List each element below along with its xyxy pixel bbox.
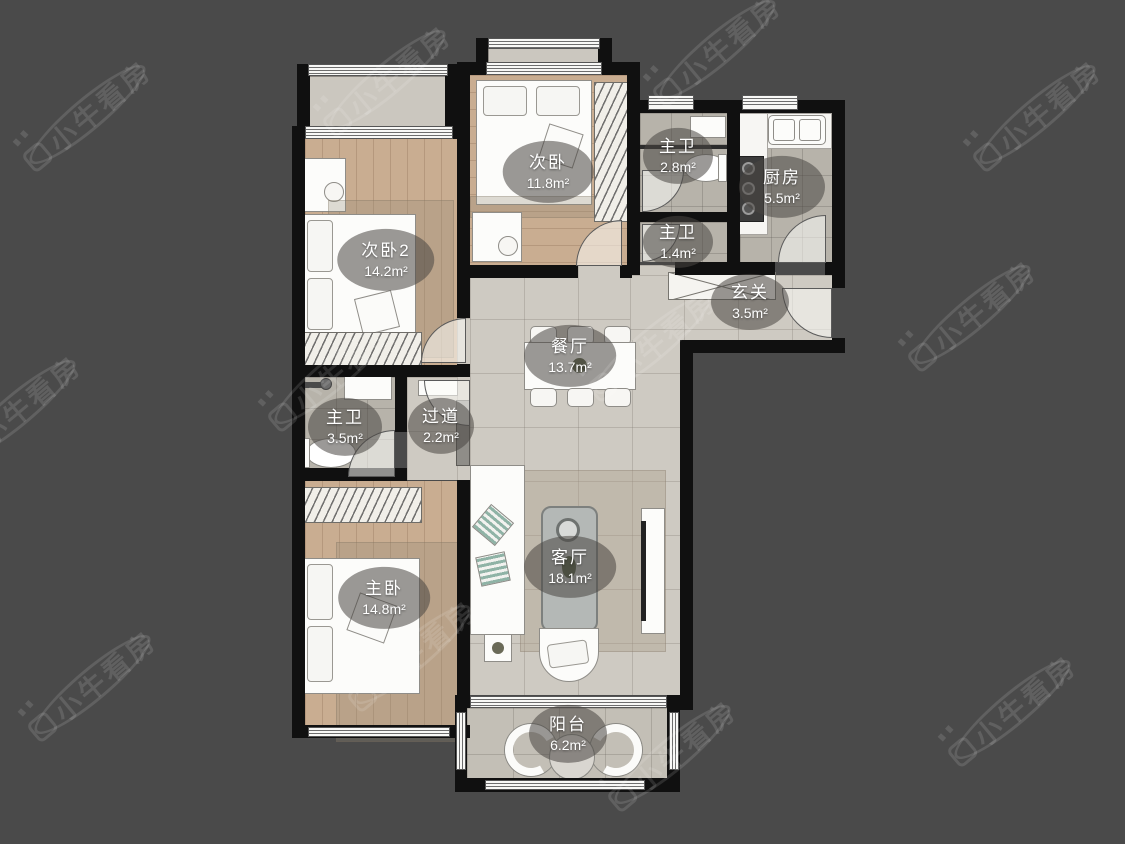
room-name: 主卫 [659,222,697,244]
window [486,62,602,75]
wall-segment [680,353,693,710]
bull-camera-logo-icon [905,340,939,374]
tv-screen [641,521,646,621]
bed-pillow [536,86,580,116]
dining-chair [604,388,631,407]
watermark: 小牛看房 [901,250,1045,380]
wall-segment [457,480,470,708]
sofa [470,465,525,635]
wall-segment [832,338,845,353]
wardrobe [302,487,422,523]
room-label-dining: 餐厅 13.7m² [524,325,616,387]
room-label-corridor: 过道 2.2m² [408,398,474,454]
desk-chair [498,236,518,256]
room-area: 6.2m² [549,736,587,754]
dining-chair [530,388,557,407]
balcony-side-window [456,712,466,770]
room-label-living: 客厅 18.1m² [524,536,616,598]
room-area: 13.7m² [548,358,592,376]
room-area: 11.8m² [527,174,570,192]
watermark-text: 小牛看房 [0,345,89,455]
balcony-window [485,780,645,790]
bull-camera-logo-icon [25,710,59,744]
room-name: 餐厅 [548,336,592,358]
room-area: 3.5m² [731,304,769,322]
watermark: 小牛看房 [0,345,89,475]
room-name: 玄关 [731,282,769,304]
floorplan-canvas: 次卧 11.8m² 主卫 2.8m² 厨房 5.5m² 次卧2 14.2m² 主… [0,0,1125,844]
window [305,126,453,139]
room-name: 过道 [422,406,460,428]
room-area: 2.2m² [422,428,460,446]
wall-segment [476,38,488,65]
bay-window [488,38,600,49]
bull-camera-logo-icon [945,735,979,769]
wardrobe [594,82,628,222]
room-name: 客厅 [548,547,592,569]
bull-camera-logo-icon [20,140,54,174]
watermark-text: 小牛看房 [924,250,1044,360]
desk-chair [324,182,344,202]
bedroom2-bay-sill [308,76,448,128]
side-table-flower [492,642,504,654]
room-area: 14.8m² [362,600,406,618]
room-name: 主卫 [326,407,364,429]
room-label-bath-1-4: 主卫 1.4m² [643,216,713,268]
room-name: 阳台 [549,714,587,736]
room-name: 次卧 [527,152,570,174]
wall-segment [395,377,407,432]
watermark-text: 小牛看房 [989,50,1109,160]
room-area: 1.4m² [659,244,697,262]
wall-segment [832,100,845,288]
wall-segment [627,62,640,275]
bull-camera-logo-icon [970,140,1004,174]
wall-segment [598,38,612,65]
master-bedroom-window [308,727,450,737]
wall-segment [457,265,578,278]
watermark: 小牛看房 [21,620,165,750]
bed-pillow [307,564,333,620]
room-label-bath-2-8: 主卫 2.8m² [643,128,713,184]
room-label-entry: 玄关 3.5m² [711,274,789,330]
wardrobe [300,332,422,366]
wall-segment [292,365,470,377]
watermark: 小牛看房 [16,50,160,180]
room-label-balcony: 阳台 6.2m² [529,705,607,763]
bed-pillow [483,86,527,116]
kitchen-sink-basin [799,119,821,141]
room-area: 18.1m² [548,569,592,587]
room-name: 主卧 [362,578,406,600]
watermark-text: 小牛看房 [39,50,159,160]
room-name: 厨房 [763,167,801,189]
watermark: 小牛看房 [966,50,1110,180]
wall-segment [825,262,845,275]
kitchen-window [742,95,798,110]
bed-pillow [307,220,333,272]
bed-pillow [307,626,333,682]
room-area: 5.5m² [763,189,801,207]
room-area: 3.5m² [326,429,364,447]
shower-fixture-head [320,378,332,390]
watermark-text: 小牛看房 [669,0,789,94]
wall-segment [620,265,632,278]
wall-segment [457,62,470,318]
watermark-text: 小牛看房 [44,620,164,730]
bed-pillow [307,278,333,330]
bathroom-window [648,95,694,110]
room-name: 主卫 [659,136,697,158]
wall-segment [680,340,832,353]
room-label-bath-3-5: 主卫 3.5m² [308,398,382,456]
watermark-text: 小牛看房 [964,645,1084,755]
room-label-master-bedroom: 主卧 14.8m² [338,567,430,629]
kitchen-sink-basin [773,119,795,141]
sofa-pillow [475,551,511,587]
room-name: 次卧2 [361,240,410,262]
dining-chair [567,388,594,407]
bay-window [308,64,448,76]
balcony-side-window [669,712,679,770]
wall-segment [292,126,305,738]
desk [472,212,522,262]
toilet-tank [718,154,727,182]
room-area: 2.8m² [659,158,697,176]
watermark: 小牛看房 [941,645,1085,775]
room-area: 14.2m² [361,262,410,280]
room-label-bedroom1: 次卧 11.8m² [503,141,594,203]
room-label-kitchen: 厨房 5.5m² [739,156,825,218]
